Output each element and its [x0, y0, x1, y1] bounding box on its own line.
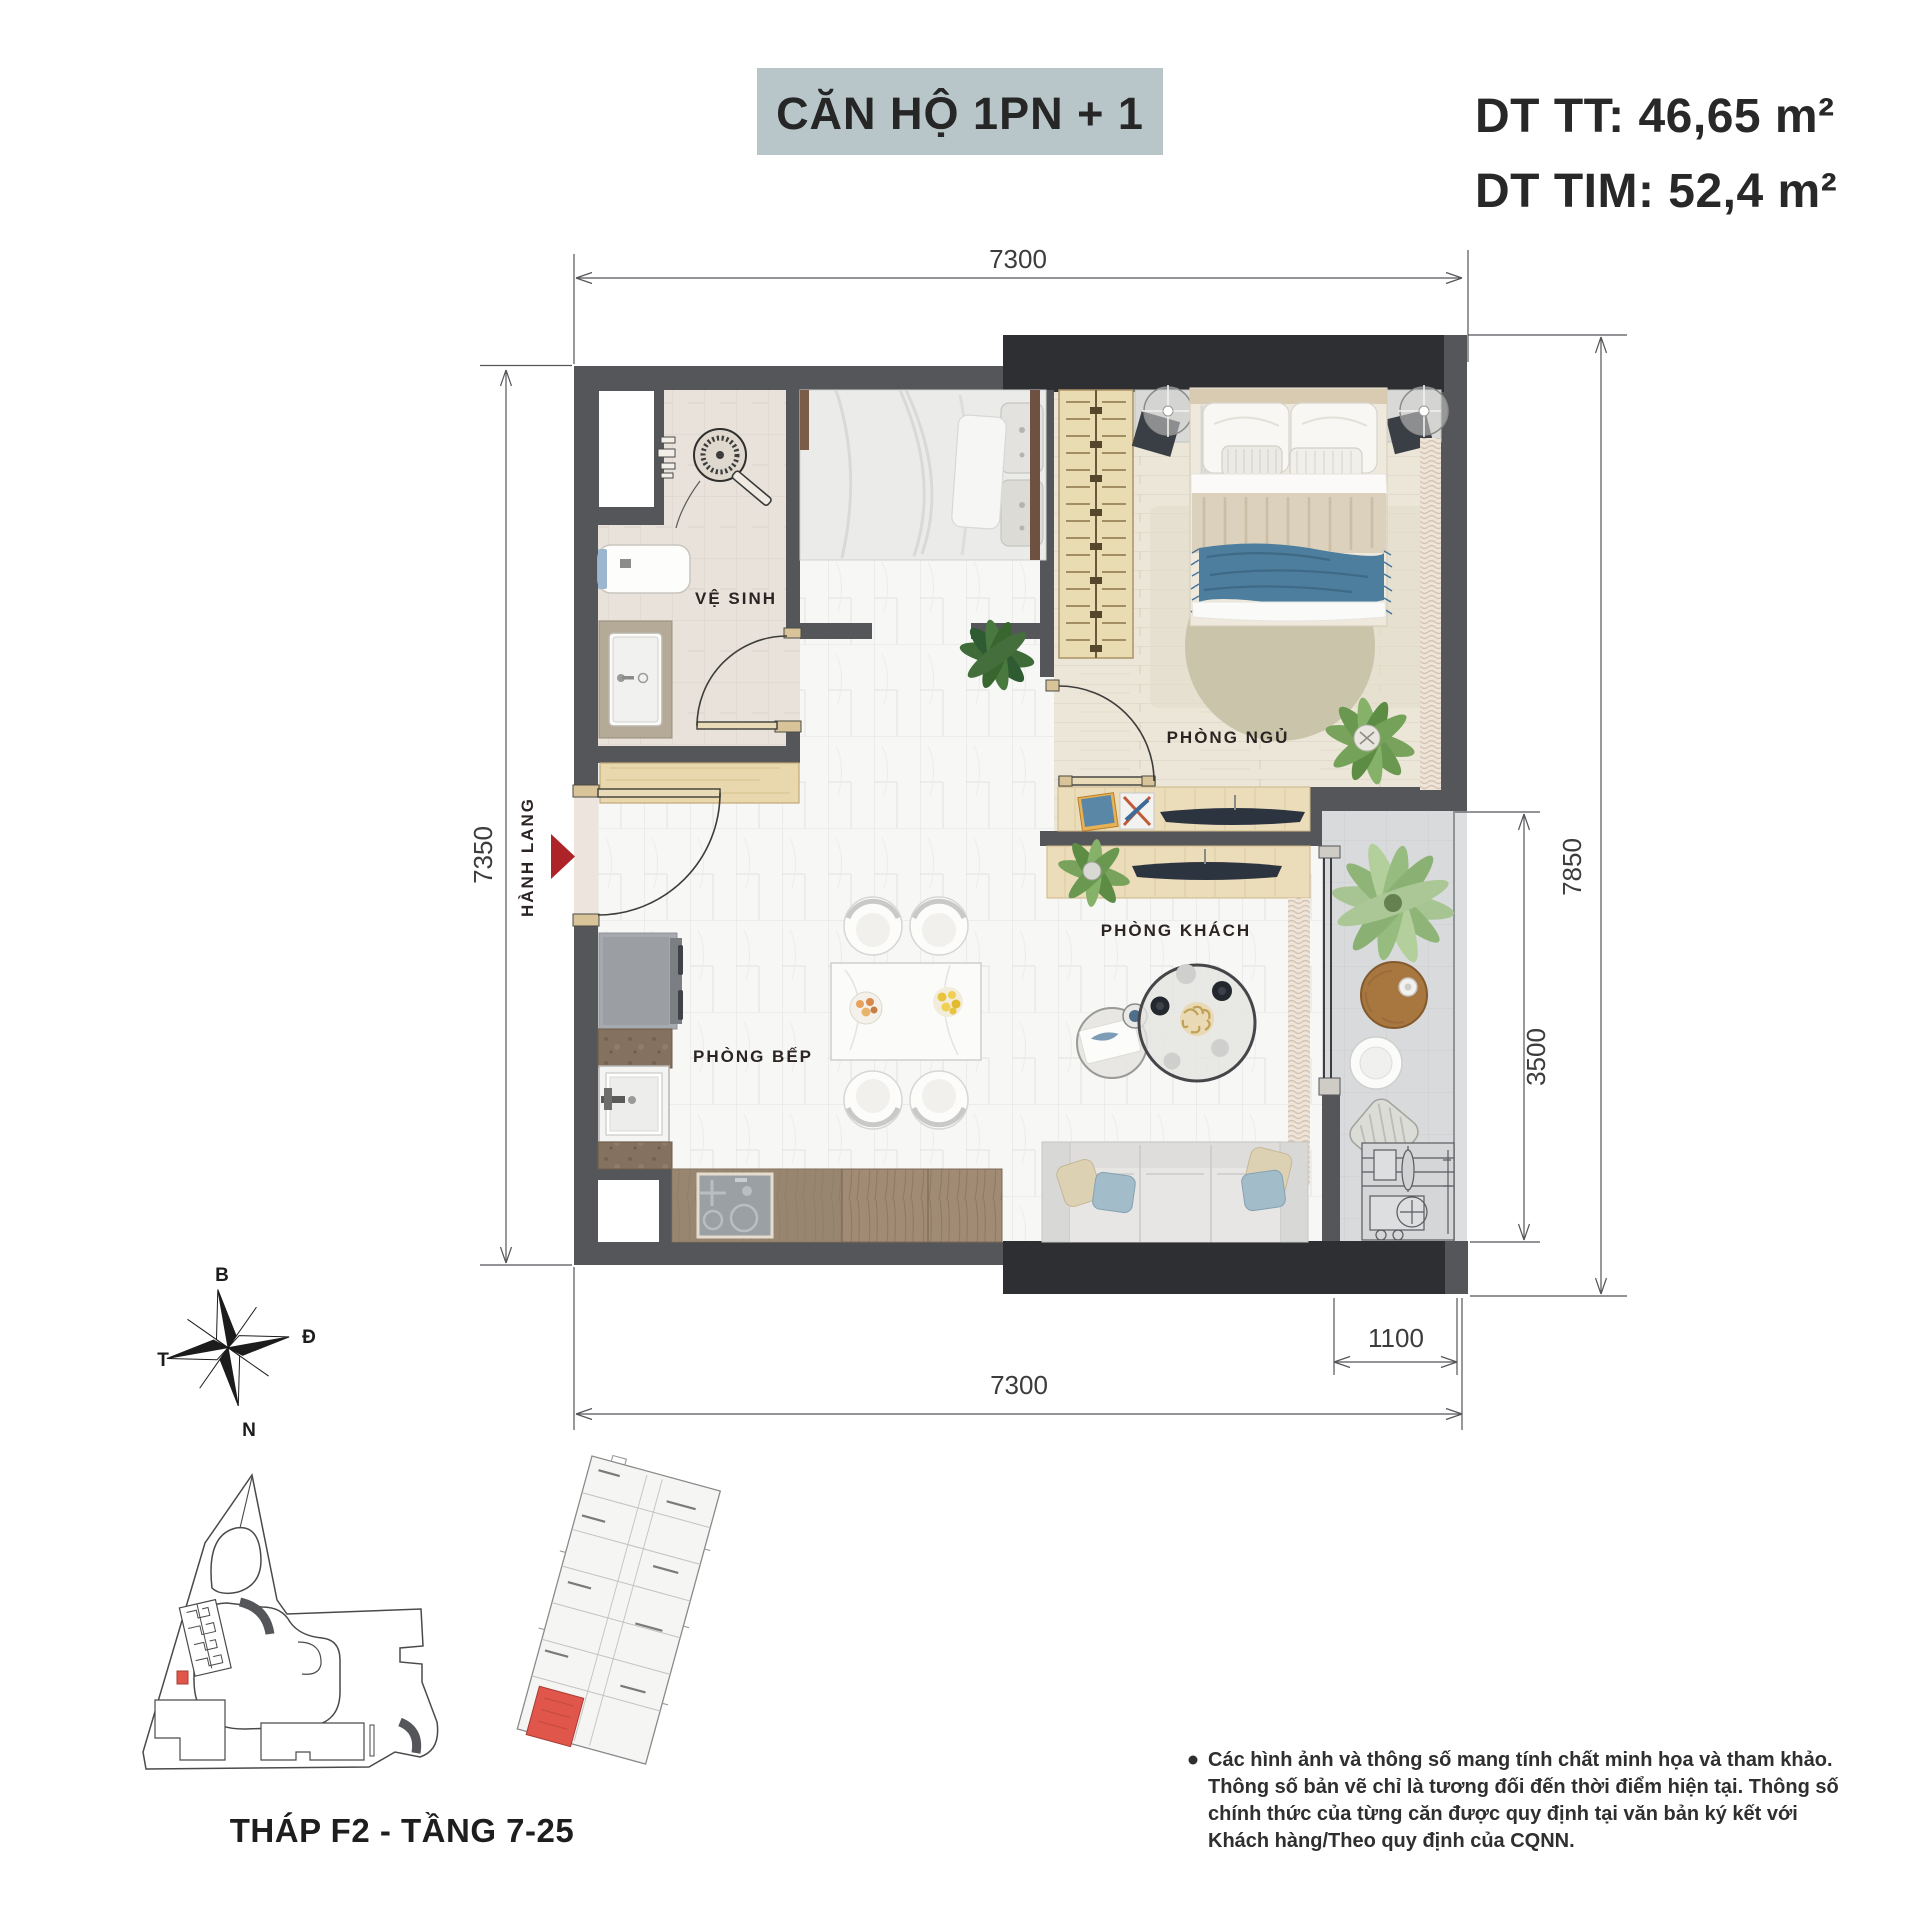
- svg-text:Các hình ảnh và thông số mang: Các hình ảnh và thông số mang tính chất …: [1208, 1749, 1833, 1771]
- svg-text:DT TT: 46,65 m²: DT TT: 46,65 m²: [1475, 90, 1835, 143]
- svg-text:DT TIM: 52,4 m²: DT TIM: 52,4 m²: [1475, 165, 1837, 218]
- svg-text:7350: 7350: [468, 826, 498, 884]
- svg-text:Khách hàng/Theo quy định của C: Khách hàng/Theo quy định của CQNN.: [1208, 1830, 1575, 1852]
- svg-text:PHÒNG BẾP: PHÒNG BẾP: [693, 1047, 813, 1066]
- svg-text:CĂN HỘ 1PN + 1: CĂN HỘ 1PN + 1: [776, 88, 1144, 139]
- svg-text:3500: 3500: [1521, 1028, 1551, 1086]
- svg-text:PHÒNG NGỦ: PHÒNG NGỦ: [1167, 728, 1290, 747]
- svg-text:T: T: [157, 1350, 169, 1371]
- svg-text:VỆ SINH: VỆ SINH: [695, 589, 777, 608]
- svg-text:THÁP F2 - TẦNG 7-25: THÁP F2 - TẦNG 7-25: [230, 1812, 574, 1849]
- svg-text:Thông số bản vẽ chỉ là tương đ: Thông số bản vẽ chỉ là tương đối đến thờ…: [1208, 1776, 1839, 1798]
- svg-text:1100: 1100: [1368, 1323, 1424, 1353]
- svg-text:7850: 7850: [1557, 838, 1587, 896]
- svg-text:HÀNH LANG: HÀNH LANG: [518, 797, 537, 917]
- svg-text:7300: 7300: [990, 1370, 1048, 1400]
- svg-text:7300: 7300: [989, 244, 1047, 274]
- svg-text:N: N: [242, 1420, 256, 1441]
- svg-text:PHÒNG KHÁCH: PHÒNG KHÁCH: [1101, 921, 1251, 940]
- svg-text:chính thức của từng căn được q: chính thức của từng căn được quy định tạ…: [1208, 1803, 1798, 1825]
- svg-text:Đ: Đ: [302, 1327, 316, 1348]
- svg-text:B: B: [215, 1265, 229, 1286]
